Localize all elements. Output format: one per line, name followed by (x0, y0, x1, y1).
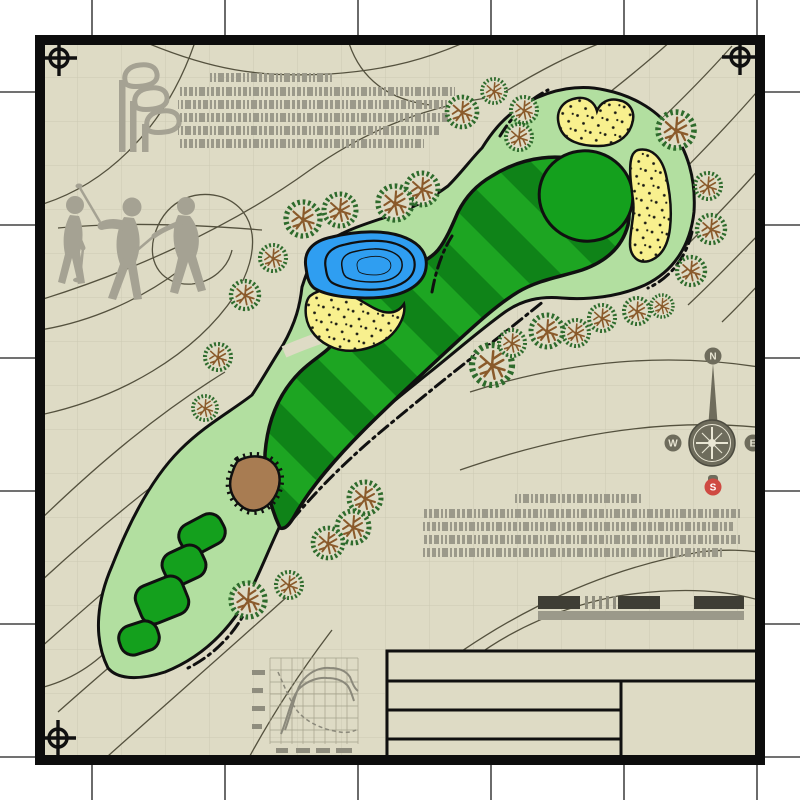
tree-icon (286, 202, 320, 236)
compass-south-label: S (710, 483, 717, 494)
tree-icon (695, 173, 721, 199)
bunker-green-top (558, 98, 633, 146)
tree-icon (447, 97, 477, 127)
plan-drawing: N W E S (0, 0, 800, 800)
tree-icon (511, 97, 537, 123)
title-block (387, 651, 765, 765)
tree-icon (651, 295, 673, 317)
tree-icon (276, 572, 302, 598)
plan-area: N W E S (40, 39, 765, 765)
scale-bar (538, 596, 744, 620)
tree-icon (499, 330, 525, 356)
tree-icon (697, 215, 725, 243)
tree-icon (677, 257, 705, 285)
tree-icon (563, 320, 589, 346)
tree-icon (531, 315, 563, 347)
tree-icon (624, 298, 650, 324)
tree-icon (313, 528, 343, 558)
tree-icon (193, 396, 217, 420)
tree-icon (589, 305, 615, 331)
tree-icon (205, 344, 231, 370)
tree-icon (231, 583, 265, 617)
tree-icon (324, 194, 356, 226)
golf-course-plan-sheet: N W E S (0, 0, 800, 800)
tree-icon (658, 112, 694, 148)
tree-icon (260, 245, 286, 271)
water-hazard (305, 232, 426, 298)
tree-icon (378, 186, 412, 220)
tree-icon (506, 124, 532, 150)
mound (230, 456, 279, 510)
compass-north-label: N (709, 352, 716, 363)
compass-west-label: W (668, 439, 678, 450)
tree-icon (231, 281, 259, 309)
tree-icon (482, 79, 506, 103)
